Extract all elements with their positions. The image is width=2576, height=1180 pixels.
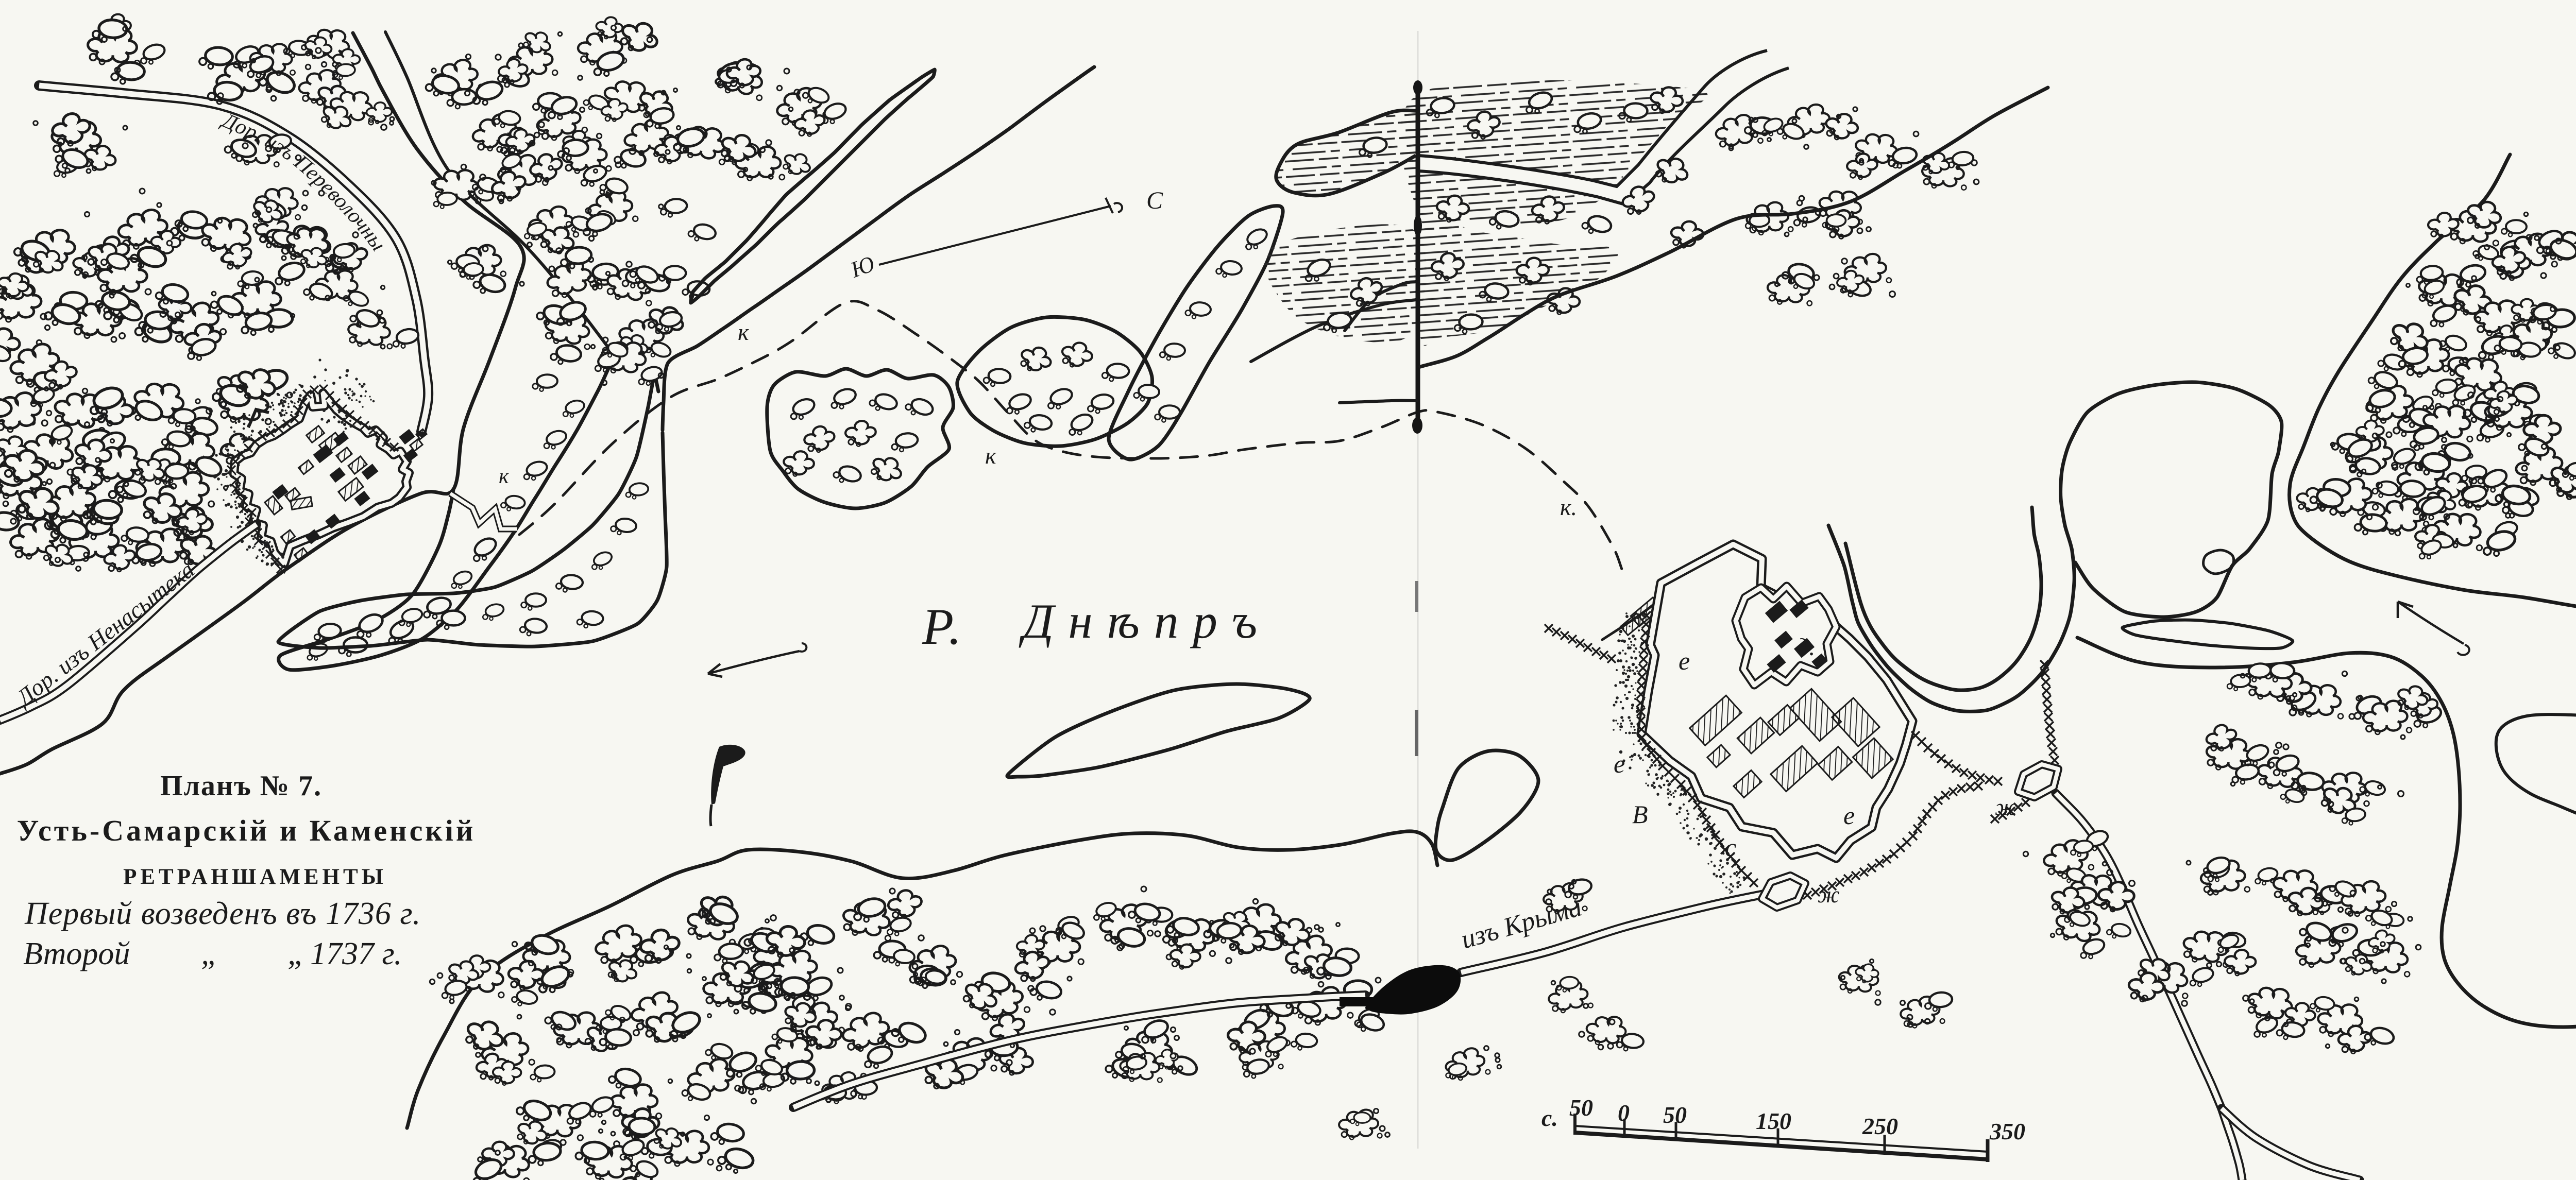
svg-text:РЕТРАНШАМЕНТЫ: РЕТРАНШАМЕНТЫ (123, 865, 387, 889)
svg-text:150: 150 (1756, 1108, 1791, 1134)
svg-text:Второй: Второй (23, 936, 130, 971)
svg-text:к.: к. (1560, 494, 1577, 520)
svg-text:„: „ (201, 936, 218, 971)
svg-text:Днѣпръ: Днѣпръ (1019, 594, 1272, 648)
svg-text:Первый возведенъ въ 1736 г.: Первый возведенъ въ 1736 г. (24, 896, 421, 931)
svg-text:е: е (1679, 646, 1690, 675)
svg-text:е: е (1614, 749, 1625, 778)
svg-text:Усть-Самарскій и Каменскій: Усть-Самарскій и Каменскій (17, 814, 476, 847)
svg-text:с: с (1725, 833, 1736, 862)
svg-text:к: к (499, 465, 509, 488)
svg-text:В: В (1632, 800, 1648, 829)
svg-text:„: „ (287, 936, 305, 971)
svg-text:50: 50 (1569, 1095, 1593, 1121)
svg-text:С: С (1146, 187, 1163, 214)
svg-text:Р.: Р. (922, 598, 961, 655)
svg-text:350: 350 (1989, 1118, 2025, 1144)
svg-text:ж: ж (1995, 794, 2017, 820)
svg-text:д.: д. (1797, 634, 1815, 661)
svg-text:Планъ № 7.: Планъ № 7. (160, 770, 322, 802)
svg-text:к: к (985, 442, 996, 469)
svg-text:ж: ж (1818, 881, 1840, 908)
svg-text:0: 0 (1618, 1100, 1630, 1126)
svg-text:к: к (738, 319, 749, 345)
svg-text:50: 50 (1663, 1102, 1687, 1128)
svg-text:1737 г.: 1737 г. (310, 936, 402, 971)
svg-text:250: 250 (1862, 1113, 1898, 1139)
svg-text:с.: с. (1541, 1105, 1558, 1131)
svg-text:е: е (1843, 801, 1855, 830)
